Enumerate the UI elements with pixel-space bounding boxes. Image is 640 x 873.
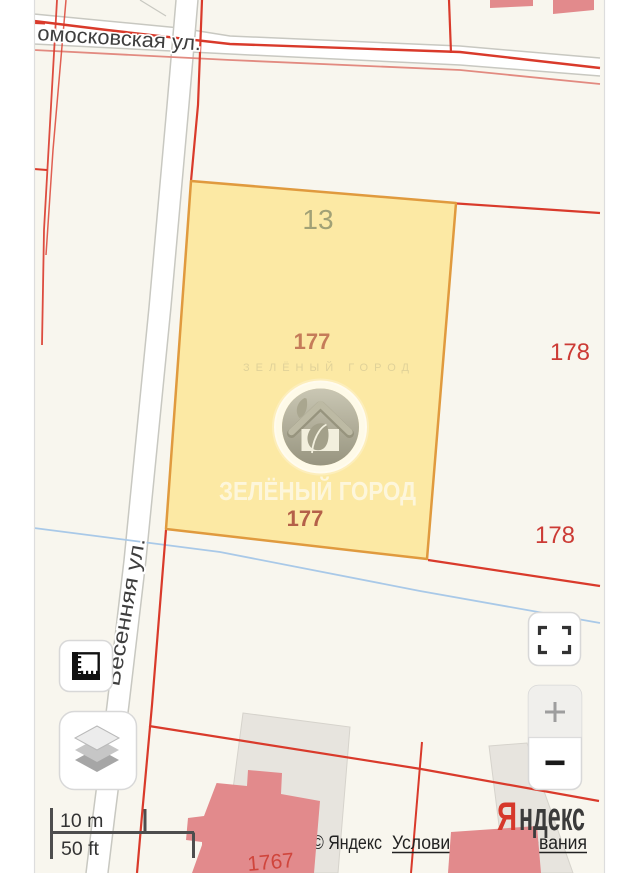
svg-text:178: 178 bbox=[535, 522, 575, 549]
svg-text:13: 13 bbox=[302, 204, 333, 235]
svg-text:Я: Я bbox=[497, 795, 517, 839]
svg-text:177: 177 bbox=[294, 329, 331, 354]
svg-text:10 m: 10 m bbox=[60, 810, 103, 832]
svg-text:177: 177 bbox=[287, 506, 324, 531]
svg-text:50 ft: 50 ft bbox=[61, 838, 100, 860]
svg-text:ЗЕЛЁНЫЙ ГОРОД: ЗЕЛЁНЫЙ ГОРОД bbox=[219, 476, 416, 506]
svg-text:ндекс: ндекс bbox=[519, 795, 585, 839]
svg-text:1767: 1767 bbox=[246, 849, 295, 873]
svg-text:© Яндекс: © Яндекс bbox=[312, 833, 382, 854]
svg-text:ЗЕЛЁНЫЙ ГОРОД: ЗЕЛЁНЫЙ ГОРОД bbox=[243, 361, 415, 374]
svg-text:178: 178 bbox=[550, 339, 590, 366]
